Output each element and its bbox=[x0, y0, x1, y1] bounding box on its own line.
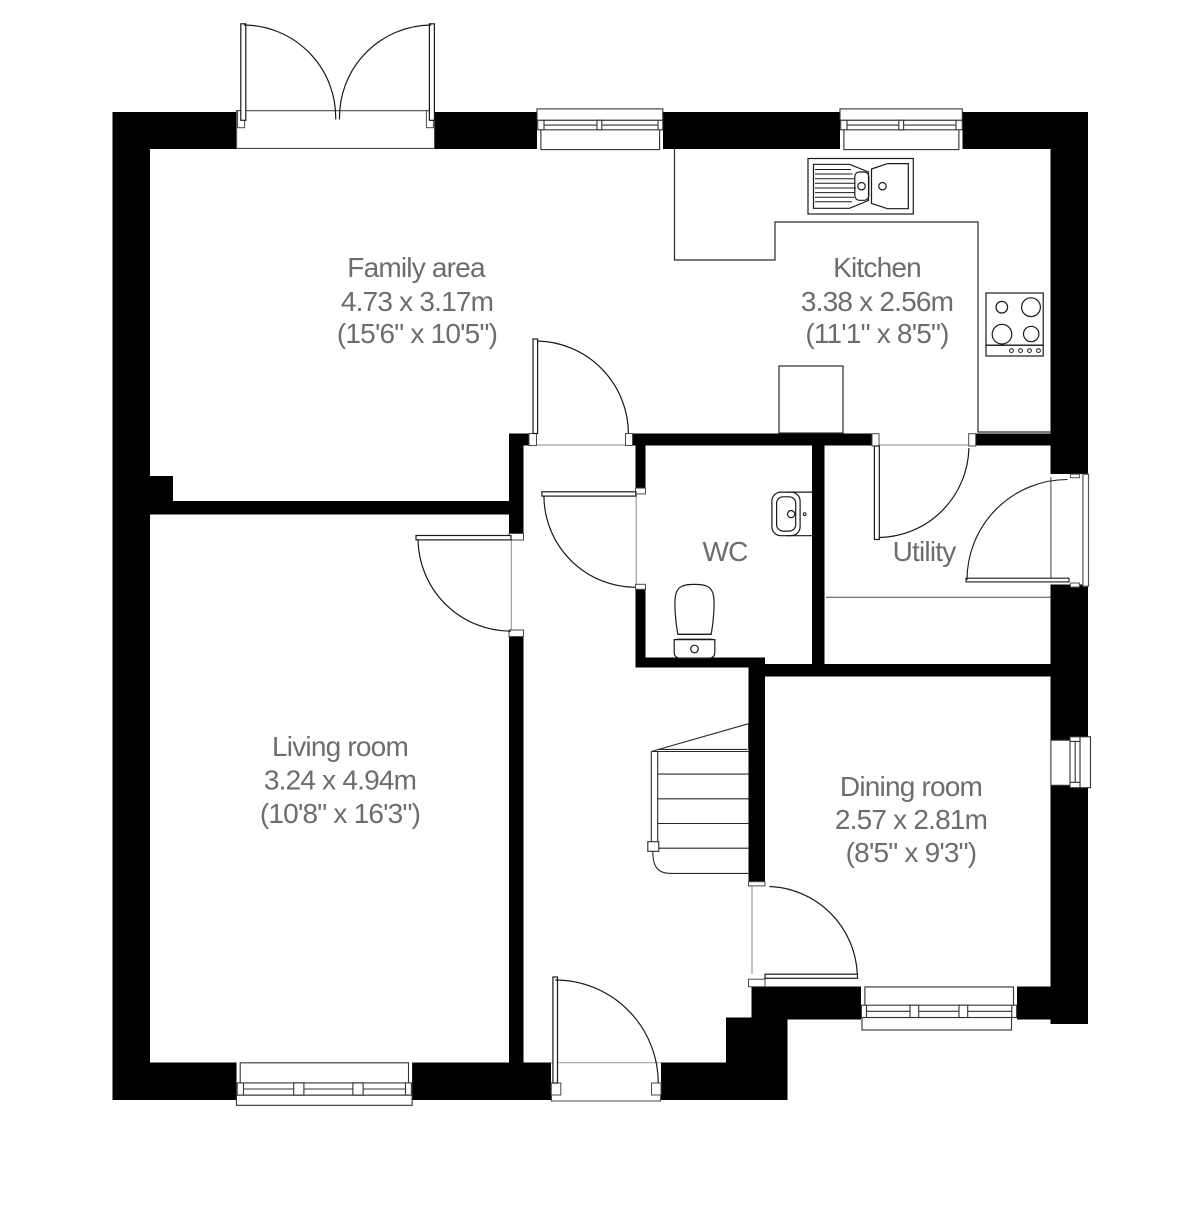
svg-text:Living room: Living room bbox=[272, 731, 408, 762]
svg-text:4.73 x 3.17m: 4.73 x 3.17m bbox=[341, 286, 493, 317]
svg-text:(11'1" x 8'5"): (11'1" x 8'5") bbox=[805, 318, 948, 349]
svg-text:(15'6" x 10'5"): (15'6" x 10'5") bbox=[337, 318, 497, 349]
svg-text:(10'8" x 16'3"): (10'8" x 16'3") bbox=[260, 798, 420, 829]
svg-text:3.38 x 2.56m: 3.38 x 2.56m bbox=[801, 286, 953, 317]
svg-text:Utility: Utility bbox=[893, 536, 957, 567]
svg-text:(8'5" x 9'3"): (8'5" x 9'3") bbox=[846, 837, 977, 868]
svg-text:Kitchen: Kitchen bbox=[833, 252, 921, 283]
svg-text:Family area: Family area bbox=[347, 252, 486, 283]
svg-text:3.24 x 4.94m: 3.24 x 4.94m bbox=[264, 765, 416, 796]
svg-text:2.57 x 2.81m: 2.57 x 2.81m bbox=[835, 804, 987, 835]
svg-text:WC: WC bbox=[702, 536, 748, 567]
svg-text:Dining room: Dining room bbox=[840, 771, 982, 802]
